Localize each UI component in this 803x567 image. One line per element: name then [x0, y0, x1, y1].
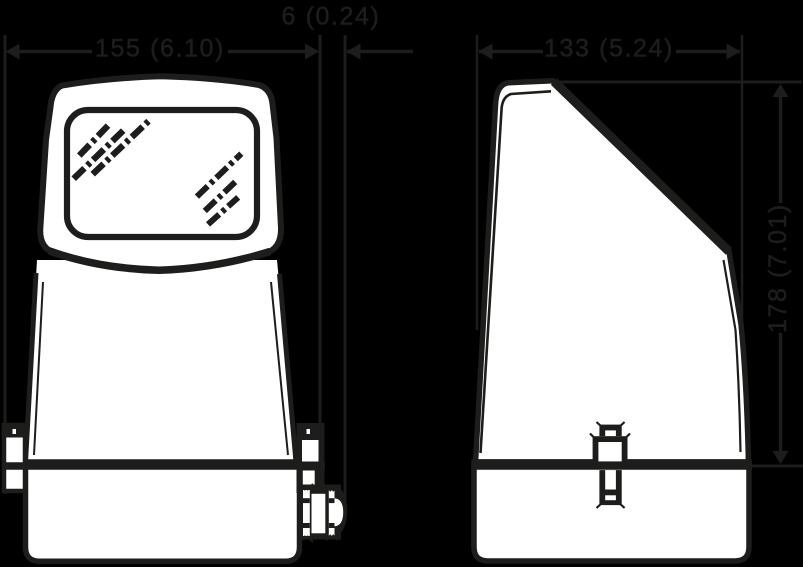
- svg-text:133 (5.24): 133 (5.24): [544, 35, 674, 63]
- svg-text:155 (6.10): 155 (6.10): [95, 35, 225, 63]
- svg-text:6 (0.24): 6 (0.24): [282, 3, 381, 31]
- svg-text:178 (7.01): 178 (7.01): [764, 203, 792, 333]
